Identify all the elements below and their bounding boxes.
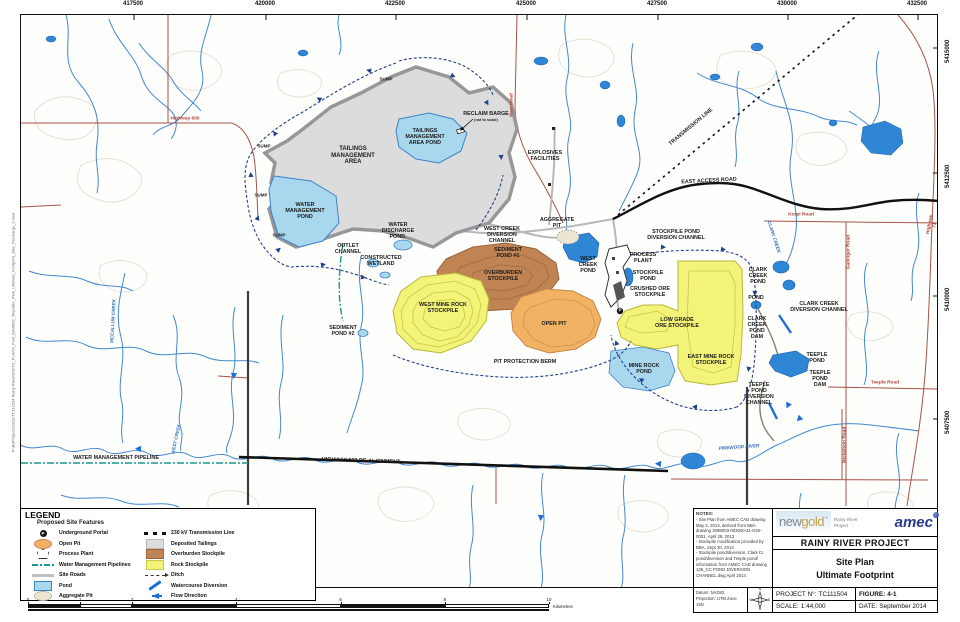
map-label: PINEWOOD RIVER <box>718 443 759 451</box>
filepath-note: P:\BBProjects\2011\TC111504 Rainy River\… <box>11 163 16 503</box>
portal-icon: P <box>40 530 47 537</box>
map-label: WEST MINE ROCK STOCKPILE <box>419 302 467 314</box>
amec-logo: amec <box>895 514 933 531</box>
map-label: LOW GRADE ORE STOCKPILE <box>655 317 699 329</box>
easting-label: 425000 <box>516 1 536 7</box>
legend-item-label: Pond <box>59 583 72 589</box>
scalebar-segment <box>28 604 80 608</box>
legend-swatch-tail-icon <box>143 539 167 548</box>
map-label: RECLAIM BARGE <box>463 111 509 117</box>
figure-title: Site Plan Ultimate Footprint <box>772 549 938 588</box>
map-label: SUMP <box>254 192 267 197</box>
pipe-icon <box>32 564 54 566</box>
map-label: SUMP <box>379 76 392 81</box>
project-number-cell: PROJECT N°:TC111504 <box>772 587 856 601</box>
legend-swatch-portal-icon: P <box>31 529 55 538</box>
map-label: WEST CREEK DIVERSION CHANNEL <box>484 226 520 244</box>
scalebar-segment <box>341 604 445 608</box>
map-label: OVERBURDEN STOCKPILE <box>484 270 522 282</box>
legend-swatch-openpit-icon <box>31 539 55 548</box>
legend-swatch-road-icon <box>31 571 55 580</box>
legend-item-label: Ditch <box>171 572 184 578</box>
rock-icon <box>146 560 164 570</box>
northing-label: 5407500 <box>945 420 951 434</box>
easting-label: 427500 <box>647 1 667 7</box>
legend-title: LEGEND <box>25 510 60 520</box>
legend-item: PUnderground Portal <box>31 528 139 538</box>
date-cell: DATE:September 2014 <box>855 600 938 613</box>
legend-swatch-ditch-icon <box>143 571 167 580</box>
map-label: SUMP <box>257 143 270 148</box>
newgold-tagline: Rainy River Project <box>834 517 866 527</box>
legend-swatch-plant-icon <box>31 550 55 559</box>
map-label: POND <box>748 295 764 301</box>
datum-box: Datum: NAD83 Projection: UTM Zone 15N <box>693 587 748 613</box>
easting-label: 417500 <box>123 1 143 7</box>
map-label: EAST ACCESS ROAD <box>681 177 737 186</box>
legend-subtitle: Proposed Site Features <box>37 520 104 526</box>
map-label: WATER DISCHARGE POND. <box>382 222 414 240</box>
legend-item-label: Overburden Stockpile <box>171 551 225 557</box>
map-label: CLARK CREEK <box>766 220 781 253</box>
trans-icon <box>144 532 166 535</box>
legend-item: Rock Stockpile <box>143 560 311 570</box>
map-label: SUMP <box>272 232 285 237</box>
map-label: Mickelson Road <box>842 427 847 464</box>
map-label: OUTLET CHANNEL <box>335 243 361 255</box>
ditch-icon <box>145 575 165 576</box>
northing-label: 5415000 <box>945 49 951 63</box>
map-label: WATER MANAGEMENT PIPELINE <box>73 455 159 461</box>
scalebar-baseline <box>28 609 549 611</box>
legend-swatch-pipe-icon <box>31 560 55 569</box>
over-icon <box>146 549 164 559</box>
compass-point-label: E <box>768 598 770 602</box>
legend-item: Deposited Tailings <box>143 539 311 549</box>
map-label: TEEPLE POND DIVERSION CHANNEL <box>744 382 774 406</box>
scalebar-segment <box>445 604 549 608</box>
legend-swatch-trans-icon <box>143 529 167 538</box>
scale-bar: 01246810Kilometres <box>28 597 588 612</box>
easting-label: 432500 <box>907 1 927 7</box>
legend-item-label: Water Management Pipelines <box>59 562 131 568</box>
northing-label: 5412500 <box>945 174 951 188</box>
map-label: Highway 71 <box>926 214 938 235</box>
legend-swatch-div-icon <box>143 581 167 590</box>
pond-icon <box>34 581 52 591</box>
map-label: TAILINGS MANAGEMENT AREA <box>331 146 375 166</box>
project-name: RAINY RIVER PROJECT <box>772 536 938 550</box>
legend-box: LEGEND Proposed Site Features PUndergrou… <box>20 508 316 601</box>
map-label: PIT PROTECTION BERM <box>494 359 557 365</box>
div-icon <box>148 580 161 590</box>
map-label: TEEPLE POND DAM <box>810 370 831 388</box>
note-line: - Stockpile pond/diversion, Clark Cr. po… <box>696 550 770 578</box>
map-label: AGGREGATE PIT <box>540 217 574 229</box>
map-label: WEST CREEK POND <box>579 256 598 274</box>
legend-swatch-over-icon <box>143 550 167 559</box>
scalebar-segment <box>80 604 132 608</box>
map-label: EXPLOSIVES FACILITIES <box>528 150 562 162</box>
legend-swatch-rock-icon <box>143 560 167 569</box>
map-label: PROCESS PLANT <box>630 252 656 264</box>
logo-row: newgold™ Rainy River Project amec <box>772 508 938 537</box>
legend-swatch-pond-icon <box>31 581 55 590</box>
figure-number-cell: FIGURE:4-1 <box>855 587 938 601</box>
map-label: SEDIMENT POND #1 <box>494 247 522 259</box>
scalebar-unit: Kilometres <box>553 604 573 609</box>
scale-cell: SCALE:1:44,000 <box>772 600 856 613</box>
map-label: CONSTRUCTED WETLAND <box>360 255 401 267</box>
map-label: CLARK CREEK DIVERSION CHANNEL <box>790 301 848 313</box>
plant-icon <box>37 549 49 559</box>
legend-item: Overburden Stockpile <box>143 549 311 559</box>
legend-item-label: 230 kV Transmission Line <box>171 530 234 536</box>
easting-label: 420000 <box>255 1 275 7</box>
newgold-logo: newgold™ <box>776 511 831 534</box>
map-label: CLARK CREEK POND DAM <box>748 316 767 340</box>
legend-item: Site Roads <box>31 570 139 580</box>
compass-rose: NESW <box>747 587 773 613</box>
map-label: P <box>619 309 622 314</box>
northing-label: 5410000 <box>945 297 951 311</box>
map-label: MINE ROCK POND <box>629 363 660 375</box>
map-label: TRANSMISSION LINE <box>668 107 714 147</box>
note-line: - Stockpile modification provided by BBA… <box>696 539 770 550</box>
legend-item-label: Open Pit <box>59 541 80 547</box>
site-plan-figure: 4175004200004225004250004275004300004325… <box>0 0 960 622</box>
map-label: STOCKPILE POND DIVERSION CHANNEL <box>647 229 705 241</box>
map-label: WATER MANAGEMENT POND <box>285 202 324 220</box>
road-icon <box>32 574 54 577</box>
map-label: STOCKPILE POND <box>633 270 664 282</box>
compass-point-label: S <box>759 607 761 611</box>
map-label: Korpi Road <box>788 212 814 217</box>
legend-item: 230 kV Transmission Line <box>143 528 311 538</box>
legend-item: Open Pit <box>31 539 139 549</box>
amec-swoosh-icon <box>933 512 939 518</box>
projection-line: Projection: UTM Zone 15N <box>696 596 745 608</box>
map-label: (not to scale) <box>474 118 498 122</box>
easting-label: 430000 <box>777 1 797 7</box>
map-label: Highway 600 <box>170 116 199 121</box>
legend-item: Ditch <box>143 570 311 580</box>
map-label: HIGHWAY 600 RE-ALIGNMENT <box>322 457 401 466</box>
map-label: TEEPLE POND <box>807 352 828 364</box>
map-label: OPEN PIT <box>541 321 566 327</box>
map-label: CLARK CREEK POND <box>749 267 768 285</box>
scalebar-segment <box>236 604 340 608</box>
map-canvas: SUMPSUMPSUMPSUMPTAILINGS MANAGEMENT AREA… <box>20 14 938 588</box>
openpit-icon <box>34 539 52 549</box>
legend-item: Watercourse Diversion <box>143 581 311 591</box>
legend-item-label: Watercourse Diversion <box>171 583 227 589</box>
map-labels: SUMPSUMPSUMPSUMPTAILINGS MANAGEMENT AREA… <box>21 15 937 587</box>
compass-point-label: W <box>749 598 752 602</box>
map-label: SEDIMENT POND #2 <box>329 325 357 337</box>
scalebar-tick <box>549 602 550 604</box>
legend-item-label: Underground Portal <box>59 530 108 536</box>
legend-item: Water Management Pipelines <box>31 560 139 570</box>
map-label: TAILINGS MANAGEMENT AREA POND <box>405 128 444 146</box>
map-label: Gallinger Road <box>846 235 851 269</box>
map-label: Teeple Road <box>871 380 899 385</box>
notes-box: NOTES: - Site Plan from AMEC CAD drawing… <box>693 508 773 588</box>
map-label: MCCALLUM CREEK <box>109 299 116 343</box>
legend-item: Process Plant <box>31 549 139 559</box>
tail-icon <box>146 539 164 549</box>
legend-item-label: Site Roads <box>59 572 86 578</box>
legend-item-label: Deposited Tailings <box>171 541 217 547</box>
map-label: WEST CREEK <box>170 423 181 454</box>
legend-item-label: Process Plant <box>59 551 93 557</box>
map-label: EAST MINE ROCK STOCKPILE <box>688 354 735 366</box>
note-line: - Site Plan from AMEC CAD drawing May 3,… <box>696 517 770 539</box>
scalebar-segment <box>132 604 236 608</box>
legend-item: Pond <box>31 581 139 591</box>
map-label: Marr Road <box>509 93 514 117</box>
map-label: CRUSHED ORE STOCKPILE <box>630 286 670 298</box>
compass-point-label: N <box>759 587 762 591</box>
easting-label: 422500 <box>385 1 405 7</box>
legend-item-label: Rock Stockpile <box>171 562 208 568</box>
